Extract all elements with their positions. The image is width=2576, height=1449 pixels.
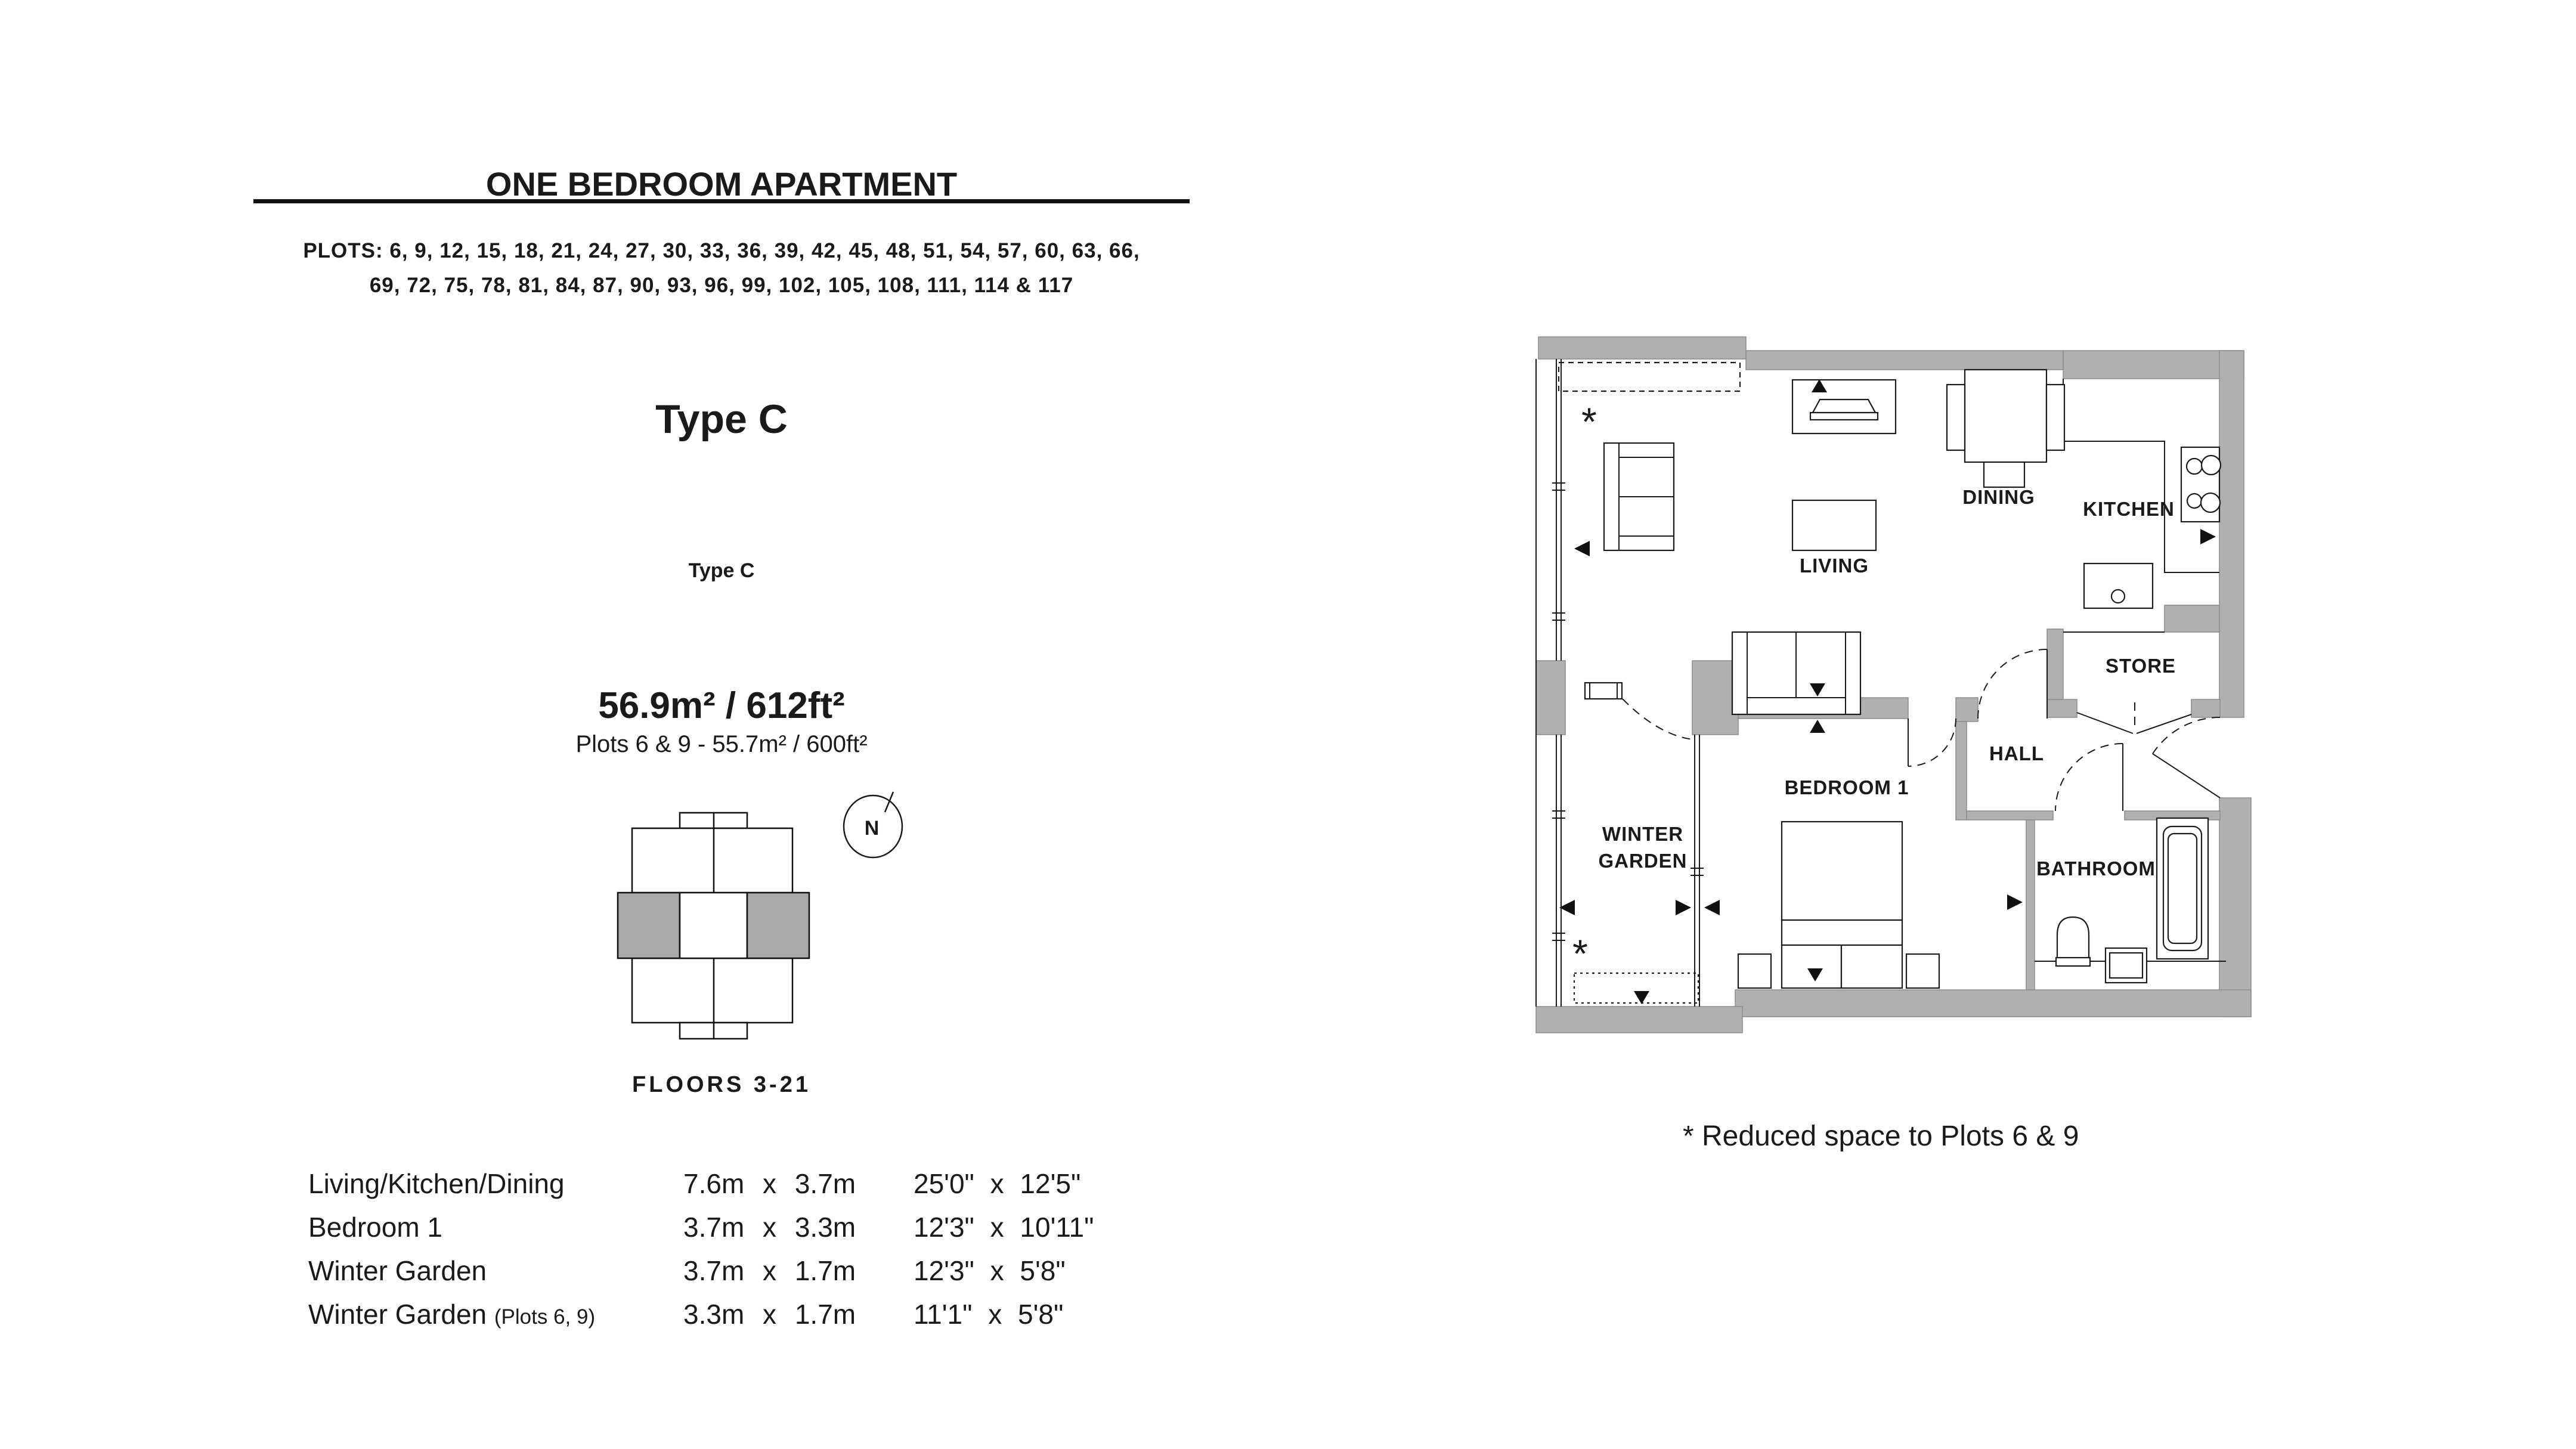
bathroom-door-swing: [2055, 744, 2123, 811]
title-underline: [253, 199, 1190, 203]
wall-bottom-winter-garden: [1536, 1007, 1742, 1033]
wall-store-jamb-left: [2047, 699, 2077, 717]
wall-right-lower: [2219, 798, 2251, 1017]
room-metric: 3.7m x 1.7m: [683, 1255, 856, 1287]
key-plan-caption: Type C: [244, 559, 1199, 583]
coffee-table: [1792, 500, 1876, 550]
floors-label: FLOORS 3-21: [244, 1072, 1199, 1098]
key-plan-core: [680, 893, 747, 958]
room-label-winter-garden-1: WINTER: [1602, 823, 1683, 845]
reduced-space-zone-bottom: [1574, 973, 1698, 1003]
key-plan-diagram: [614, 810, 813, 1044]
room-name: Living/Kitchen/Dining: [308, 1168, 565, 1199]
sink-drain: [2111, 590, 2125, 603]
reduced-space-note: * Reduced space to Plots 6 & 9: [1683, 1120, 2079, 1153]
page-title: ONE BEDROOM APARTMENT: [244, 165, 1199, 203]
arrow-right-icon: [1676, 900, 1691, 915]
room-imperial: 25'0" x 12'5": [914, 1168, 1080, 1200]
winter-garden-glazed-partition: [1690, 735, 1704, 1007]
hall-door-swing: [1978, 649, 2047, 719]
arrow-down-icon: [1634, 991, 1649, 1004]
reduced-space-asterisk-top: *: [1581, 400, 1597, 444]
hob-burner: [2187, 494, 2202, 508]
room-label-store: STORE: [2106, 655, 2176, 677]
key-plan-highlight-left: [618, 893, 680, 958]
plots-line-1: PLOTS: 6, 9, 12, 15, 18, 21, 24, 27, 30,…: [244, 234, 1199, 268]
toilet-base: [2056, 958, 2090, 966]
wall-bathroom-top-left: [1967, 811, 2053, 820]
room-label-hall: HALL: [1989, 742, 2044, 764]
reduced-space-asterisk-bottom: *: [1572, 931, 1588, 976]
bed-footbox-right: [1841, 945, 1902, 988]
dining-table: [1965, 370, 2046, 462]
room-metric: 3.3m x 1.7m: [683, 1298, 856, 1330]
bedside-table-right: [1906, 954, 1939, 988]
wall-store-left: [2047, 629, 2063, 699]
reduced-space-zone-top: [1559, 363, 1740, 391]
wall-top-band: [1746, 351, 2063, 370]
wall-kitchen-step: [2165, 605, 2219, 632]
hob-burner: [2201, 493, 2220, 512]
room-label-living: LIVING: [1800, 555, 1869, 577]
front-door-leaf: [2153, 754, 2220, 798]
plots-line-2: 69, 72, 75, 78, 81, 84, 87, 90, 93, 96, …: [244, 268, 1199, 303]
dining-chair-right: [2046, 385, 2064, 450]
wall-bottom-right: [1735, 990, 2251, 1017]
room-label-winter-garden-2: GARDEN: [1598, 850, 1687, 872]
key-plan-highlight-right: [747, 893, 809, 958]
wall-store-jamb-right: [2191, 699, 2220, 717]
arrow-up-icon: [1810, 720, 1825, 733]
room-name: Bedroom 1: [308, 1212, 442, 1243]
winter-garden-door-swing: [1623, 699, 1692, 739]
arrow-left-icon: [1704, 900, 1720, 915]
dining-chair-left: [1947, 385, 1965, 450]
hob-burner: [2202, 456, 2221, 475]
arrow-right-icon: [2200, 529, 2216, 544]
wall-facade-pillar: [1536, 661, 1565, 735]
unit-area: 56.9m² / 612ft²: [244, 685, 1199, 727]
bed-footbox-left: [1782, 945, 1841, 988]
tv-icon: [1813, 400, 1875, 413]
compass-icon: N: [840, 788, 917, 872]
arrow-left-icon: [1574, 541, 1590, 556]
bedside-table-left: [1738, 954, 1771, 988]
room-label-kitchen: KITCHEN: [2083, 498, 2175, 520]
hob-burner: [2187, 459, 2202, 474]
floor-plan: * * LIVING DINING KITCHEN STORE HALL BED…: [1532, 334, 2284, 1044]
room-label-dining: DINING: [1962, 486, 2035, 508]
front-door-swing: [2153, 717, 2220, 754]
unit-area-note: Plots 6 & 9 - 55.7m² / 600ft²: [244, 731, 1199, 758]
room-imperial: 12'3" x 5'8": [914, 1255, 1066, 1287]
room-note: (Plots 6, 9): [494, 1305, 595, 1329]
wall-bedroom-hall: [1956, 722, 1967, 820]
room-imperial: 12'3" x 10'11": [914, 1211, 1094, 1243]
room-metric: 7.6m x 3.7m: [683, 1168, 856, 1200]
wall-winter-garden-chunk: [1692, 661, 1738, 735]
wall-right-upper: [2219, 351, 2244, 717]
plots-list: PLOTS: 6, 9, 12, 15, 18, 21, 24, 27, 30,…: [244, 234, 1199, 303]
wall-bedroom-door-jamb: [1956, 698, 1978, 722]
bathtub-inner2: [2168, 834, 2197, 943]
room-metric: 3.7m x 3.3m: [683, 1211, 856, 1243]
wall-bedroom-bathroom: [2026, 820, 2035, 990]
room-label-bathroom: BATHROOM: [2036, 857, 2156, 880]
wall-top-kitchen: [2063, 351, 2244, 379]
wall-top-left-block: [1538, 337, 1746, 359]
dining-chair-bottom: [1984, 462, 2024, 487]
basin-inner: [2110, 953, 2142, 978]
bed: [1782, 822, 1902, 920]
key-plan-top-wing: [632, 828, 792, 893]
room-label-bedroom: BEDROOM 1: [1785, 776, 1909, 798]
tv-stand: [1810, 413, 1878, 420]
toilet: [2057, 917, 2089, 961]
room-imperial: 11'1" x 5'8": [914, 1298, 1063, 1330]
room-name: Winter Garden: [308, 1299, 487, 1330]
bedroom-door-swing: [1908, 719, 1956, 766]
compass-north-label: N: [865, 817, 880, 840]
key-plan-bottom-wing: [632, 958, 792, 1023]
winter-garden-door-panel: [1585, 683, 1622, 699]
room-labels: LIVING DINING KITCHEN STORE HALL BEDROOM…: [1598, 486, 2176, 880]
type-heading: Type C: [244, 396, 1199, 442]
room-name: Winter Garden: [308, 1255, 487, 1286]
arrow-right-icon: [2007, 894, 2023, 910]
bed-foot-band: [1782, 920, 1902, 945]
